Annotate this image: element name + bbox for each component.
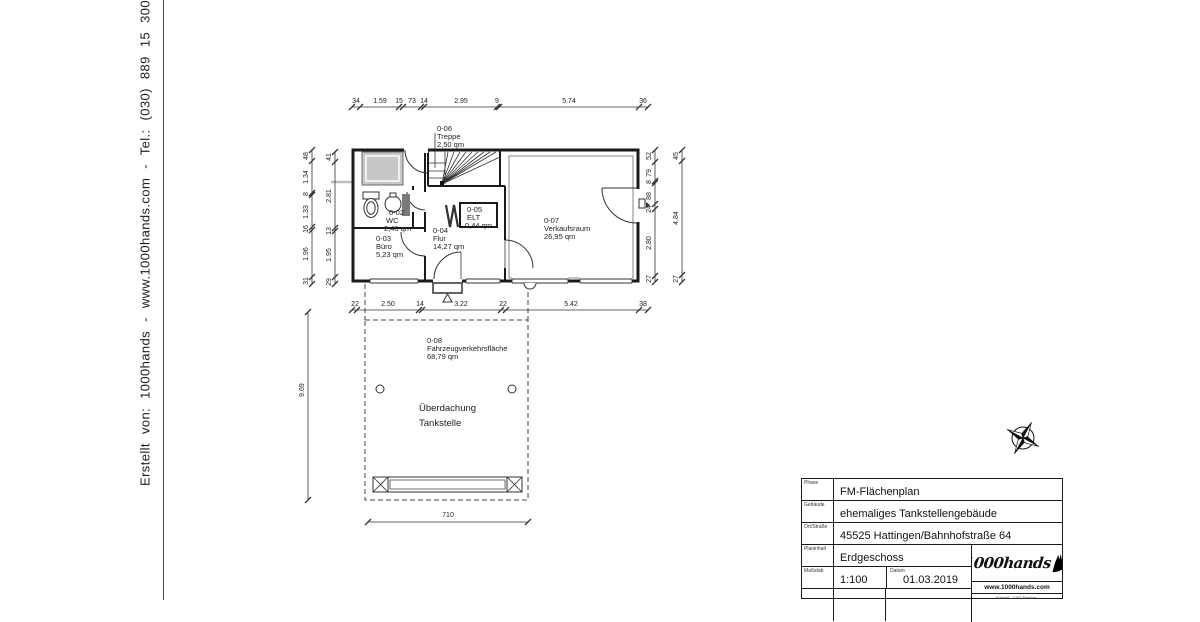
logo-site-text: www.1000hands.com xyxy=(972,581,1062,593)
planinhalt-value: Erdgeschoss xyxy=(834,545,971,566)
title-row-planinhalt: Planinhalt Erdgeschoss xyxy=(802,545,971,567)
title-row-partial xyxy=(802,589,971,621)
dim-bottom-5: 5.42 xyxy=(564,301,578,308)
gebaeude-label: Gebäude xyxy=(802,501,834,522)
dim-right-outer-2: 27 xyxy=(673,275,680,283)
dim-right-outer-1: 4.84 xyxy=(673,211,680,225)
fuel-island xyxy=(373,477,522,492)
room-elt-area: 0,44 qm xyxy=(465,221,492,230)
title-block: Phase FM-Flächenplan Gebäude ehemaliges … xyxy=(801,478,1063,599)
dim-left-outer-2: 8 xyxy=(303,192,310,196)
logo-brand-text: 1000hands xyxy=(972,554,1051,572)
dim-top-0: 34 xyxy=(352,98,360,105)
dim-bottom-3: 3.22 xyxy=(454,301,468,308)
north-compass-icon xyxy=(1003,418,1043,458)
title-row-massstab-datum: Maßstab 1:100 Datum 01.03.2019 xyxy=(802,567,971,589)
dim-left-outer-5: 1.96 xyxy=(303,247,310,261)
dim-right-inner-3: 88 xyxy=(646,192,653,200)
dim-right-inner-6: 27 xyxy=(646,275,653,283)
massstab-label: Maßstab xyxy=(802,567,834,588)
dim-canopy-width: 710 xyxy=(442,512,454,519)
area-fahrzeug-area: 68,79 qm xyxy=(427,352,458,361)
shower-block xyxy=(362,152,403,185)
dim-left-inner-3: 1.95 xyxy=(326,248,333,262)
room-wc-area: 2,46 qm xyxy=(384,224,411,233)
dim-right-inner-0: 52 xyxy=(646,152,653,160)
title-row-ort: Ort/Straße 45525 Hattingen/Bahnhofstraße… xyxy=(802,523,1062,545)
dim-top-2: 15 xyxy=(395,98,403,105)
dim-top-6: 9 xyxy=(495,98,499,105)
title-row-gebaeude: Gebäude ehemaliges Tankstellengebäude xyxy=(802,501,1062,523)
canopy-outline xyxy=(365,284,528,500)
dim-left-outer-6: 31 xyxy=(303,277,310,285)
room-treppe-area: 2,50 qm xyxy=(437,140,464,149)
dim-left-inner-2: 13 xyxy=(326,227,333,235)
dim-bottom-6: 38 xyxy=(639,301,647,308)
dim-top-5: 2.95 xyxy=(454,98,468,105)
toilet-tank xyxy=(363,192,379,199)
canopy-columns xyxy=(376,385,516,393)
dim-bottom-4: 22 xyxy=(499,301,507,308)
room-verkauf-area: 26,95 qm xyxy=(544,232,575,241)
dim-top-3: 73 xyxy=(408,98,416,105)
dim-left-outer-0: 48 xyxy=(303,152,310,160)
dim-left-inner-1: 2.81 xyxy=(326,189,333,203)
ort-label: Ort/Straße xyxy=(802,523,834,544)
gebaeude-value: ehemaliges Tankstellengebäude xyxy=(834,501,1062,522)
floor-plan-sheet: { "margin": { "credit": "Erstellt von: 1… xyxy=(0,0,1200,600)
dim-right-inner-1: 79 xyxy=(646,169,653,177)
dim-right-inner-2: 8 xyxy=(646,180,653,184)
dim-top-1: 1.59 xyxy=(373,98,387,105)
dim-right-outer-0: 45 xyxy=(673,152,680,160)
dim-left-outer-4: 16 xyxy=(303,225,310,233)
dim-canopy-depth: 9.69 xyxy=(299,383,306,397)
dim-left-outer-3: 1.33 xyxy=(303,205,310,219)
dim-left-inner-0: 41 xyxy=(326,153,333,161)
massstab-value: 1:100 xyxy=(834,567,886,588)
dim-top-8: 36 xyxy=(639,98,647,105)
title-row-phase: Phase FM-Flächenplan xyxy=(802,479,1062,501)
phase-label: Phase xyxy=(802,479,834,500)
dim-left-inner-4: 29 xyxy=(326,278,333,286)
dim-bottom-0: 22 xyxy=(351,301,359,308)
planinhalt-label: Planinhalt xyxy=(802,545,834,566)
dim-right-inner-5: 2.80 xyxy=(646,236,653,250)
dim-top-4: 14 xyxy=(420,98,428,105)
datum-value: 01.03.2019 xyxy=(903,574,958,586)
phase-value: FM-Flächenplan xyxy=(834,479,1062,500)
canopy-label-1: Überdachung xyxy=(419,403,476,414)
dim-left-outer-1: 1.34 xyxy=(303,170,310,184)
canopy-label-2: Tankstelle xyxy=(419,418,461,429)
dim-right-inner-4: 24 xyxy=(646,205,653,213)
logo-cell: 1000hands www.1000hands.com Aufmaß - CAD… xyxy=(972,545,1062,622)
ort-value: 45525 Hattingen/Bahnhofstraße 64 xyxy=(834,523,1062,544)
dim-top-7: 5.74 xyxy=(562,98,576,105)
hand-logo-icon xyxy=(1050,551,1062,575)
room-flur-area: 14,27 qm xyxy=(433,242,464,251)
dim-bottom-1: 2.50 xyxy=(381,301,395,308)
room-buero-area: 5,23 qm xyxy=(376,250,403,259)
dim-bottom-2: 14 xyxy=(416,301,424,308)
